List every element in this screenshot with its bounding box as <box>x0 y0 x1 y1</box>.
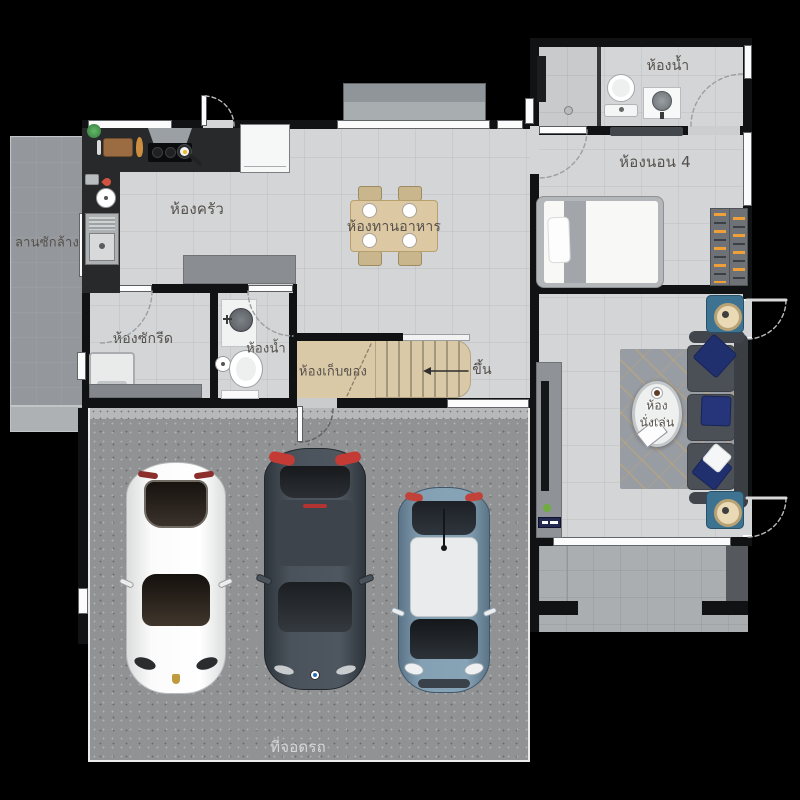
terrace-joint-line <box>567 545 568 601</box>
staircase <box>375 340 471 398</box>
window-bath-top-west <box>525 98 534 124</box>
door-leaf-bedroom <box>539 126 587 134</box>
console-light <box>542 521 548 524</box>
rear-window <box>144 480 208 528</box>
label-storage: ห้องเก็บของ <box>299 361 367 382</box>
planter-lower <box>344 102 485 120</box>
kitchen-island-counter <box>183 255 296 284</box>
window-bath-top <box>744 45 752 79</box>
speaker-bottom <box>706 491 744 529</box>
dish-rack <box>85 174 99 185</box>
terrace-area <box>539 543 748 632</box>
wall-bath-top-north <box>530 38 752 47</box>
garage-apron-band <box>90 408 528 419</box>
door-leaf-kitchen-north <box>201 95 207 126</box>
burner-right <box>165 147 176 158</box>
planter-box <box>343 83 486 121</box>
drain-board <box>89 217 115 230</box>
dining-chair <box>398 186 422 201</box>
wall-storage-north <box>289 333 403 341</box>
door-leaf-garage <box>297 406 303 442</box>
window-north-dining <box>337 120 490 129</box>
terrace-dark-tiles <box>726 545 748 602</box>
wardrobe <box>710 208 748 286</box>
washing-yard-area <box>10 136 84 406</box>
floor-plan: ลานซักล้าง ห้องครัว ห้องทานอาหาร ห้องน้ำ… <box>0 0 800 800</box>
cutting-board <box>103 138 133 157</box>
planter-upper <box>344 84 485 102</box>
bed-pillow <box>547 217 571 264</box>
garage-west-window <box>78 588 88 614</box>
basin-top <box>652 91 672 111</box>
plant-pot <box>87 124 101 138</box>
speaker-dot <box>722 507 729 514</box>
wall-bath-mid-west <box>210 284 218 408</box>
label-bathroom-mid: ห้องน้ำ <box>246 338 286 359</box>
windshield <box>278 582 352 632</box>
rear-window <box>280 466 350 498</box>
door-gap-garage <box>297 398 337 408</box>
door-gap-bath-top <box>688 126 740 135</box>
badge-center <box>313 673 317 677</box>
laundry-counter <box>89 384 202 398</box>
sofa-backrest <box>734 334 748 508</box>
front-grille <box>418 679 470 688</box>
toilet-seat-top <box>612 79 630 97</box>
label-kitchen: ห้องครัว <box>170 197 224 221</box>
wall-shower-partition <box>597 47 601 126</box>
window-west-laundry <box>77 352 86 380</box>
label-garage: ที่จอดรถ <box>270 735 326 759</box>
toilet-seat-mid <box>236 357 256 381</box>
wooden-spoon <box>136 137 143 157</box>
toilet-button-mid <box>221 362 225 366</box>
speaker-dot <box>722 311 729 318</box>
door-gap-bedroom <box>530 126 539 174</box>
burner-left <box>152 147 163 158</box>
egg-yolk <box>183 150 187 154</box>
label-bathroom-top: ห้องน้ำ <box>647 55 690 77</box>
door-arc-living-south <box>747 498 786 537</box>
speaker-cone <box>714 499 742 527</box>
label-stairs-up: ขึ้น <box>472 359 492 381</box>
window-living-south <box>553 537 731 546</box>
game-console <box>538 517 561 528</box>
toilet-flush-button <box>619 107 624 112</box>
plant-small <box>543 504 551 512</box>
label-bedroom4: ห้องนอน 4 <box>619 150 691 174</box>
washing-yard-step <box>10 406 84 432</box>
car-white <box>126 462 226 694</box>
console-slot <box>550 521 558 524</box>
range-hood <box>148 128 192 143</box>
shower-screen <box>537 56 546 102</box>
coffee <box>654 390 660 396</box>
dining-chair <box>358 251 382 266</box>
antenna-base <box>441 545 447 551</box>
car-blue <box>398 487 490 693</box>
door-leaf-bath-mid <box>248 285 293 292</box>
bath-mat-top <box>610 127 683 136</box>
window-south-understair <box>447 399 529 408</box>
car-dark <box>264 448 366 690</box>
basin-mid <box>229 308 253 332</box>
sink-drain <box>99 243 105 249</box>
wardrobe-divider <box>729 209 730 285</box>
door-gap-living-north <box>743 299 752 339</box>
hood-badge <box>172 674 180 684</box>
tv-screen <box>541 381 549 491</box>
label-laundry: ห้องซักรีด <box>113 328 173 350</box>
shower-drain <box>564 106 573 115</box>
kitchen-sink-unit <box>85 213 119 265</box>
refrigerator-door-line <box>244 166 286 167</box>
antenna <box>443 509 445 549</box>
bath-mat-mid <box>221 390 259 399</box>
tv-console <box>536 362 562 538</box>
stair-top-edge <box>402 334 470 341</box>
label-dining: ห้องทานอาหาร <box>347 216 441 238</box>
label-living-2: นั่งเล่น <box>640 414 675 433</box>
pillow-navy-2 <box>700 395 731 426</box>
window-bedroom-east <box>743 132 752 206</box>
knife <box>97 140 101 155</box>
roof-brake-light <box>303 504 327 508</box>
windshield <box>142 574 210 626</box>
faucet-top <box>660 112 664 119</box>
dining-chair <box>358 186 382 201</box>
windshield <box>410 619 478 659</box>
hangers-right <box>733 217 745 283</box>
label-washing-yard: ลานซักล้าง <box>15 232 79 253</box>
dining-chair <box>398 251 422 266</box>
speaker-top <box>706 295 744 333</box>
bmw-badge <box>310 670 320 680</box>
window-north-small <box>497 120 523 129</box>
wall-bath-mid-east <box>289 284 297 408</box>
faucet-mid-v <box>226 315 228 324</box>
door-arc-living-north <box>747 300 786 339</box>
speaker-cone <box>714 303 742 331</box>
terrace-wall-stub-right <box>702 601 748 615</box>
roof <box>276 500 354 566</box>
pot-lid-knob <box>104 196 108 200</box>
hangers-left <box>714 213 726 283</box>
